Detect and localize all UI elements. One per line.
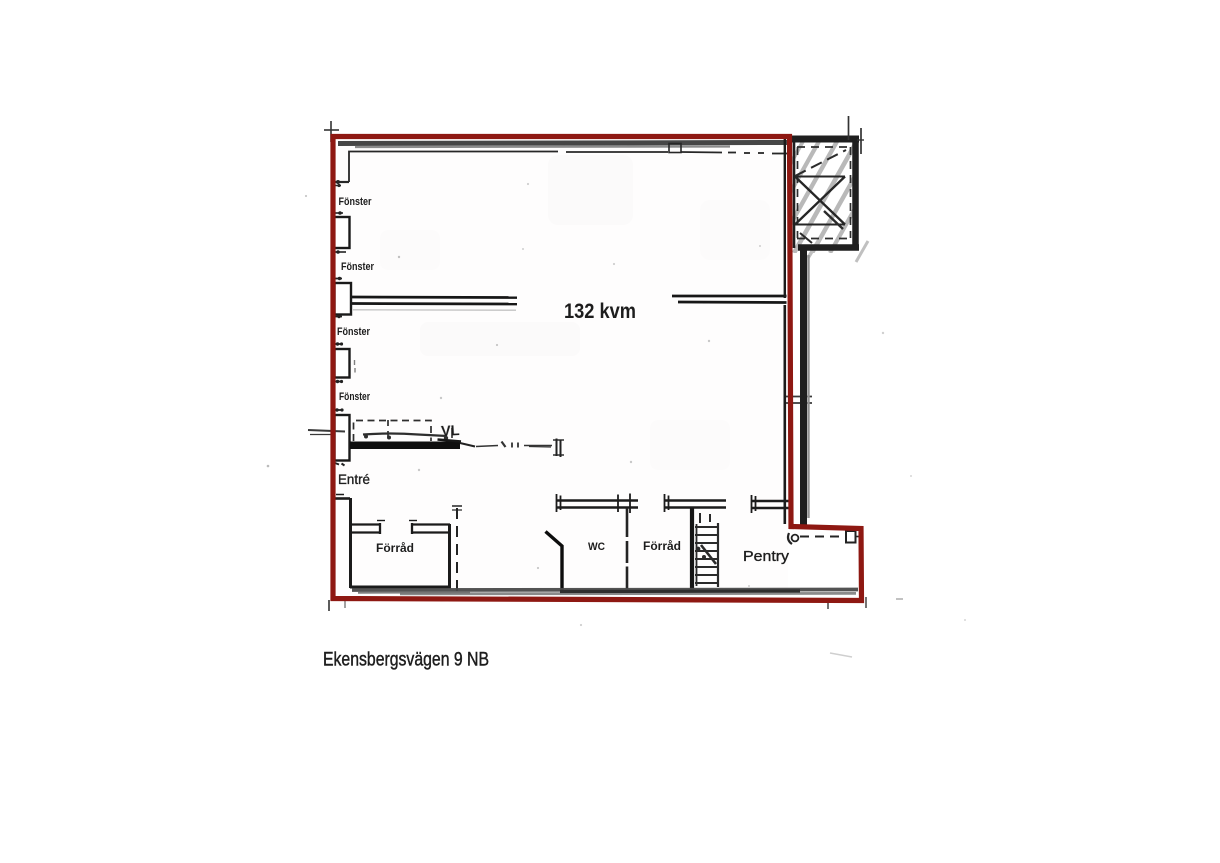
svg-text:Förråd: Förråd: [376, 541, 414, 555]
svg-text:Fönster: Fönster: [339, 391, 371, 403]
svg-text:Fönster: Fönster: [341, 261, 374, 273]
svg-text:Fönster: Fönster: [337, 326, 370, 338]
svg-text:Förråd: Förråd: [643, 539, 681, 553]
svg-text:Pentry: Pentry: [743, 548, 790, 565]
svg-text:132 kvm: 132 kvm: [564, 300, 636, 323]
svg-text:Entré: Entré: [338, 472, 370, 487]
svg-text:Fönster: Fönster: [339, 196, 372, 208]
svg-text:VL: VL: [441, 423, 460, 440]
svg-text:Ekensbergsvägen 9 NB: Ekensbergsvägen 9 NB: [323, 649, 489, 671]
svg-text:WC: WC: [588, 541, 605, 553]
